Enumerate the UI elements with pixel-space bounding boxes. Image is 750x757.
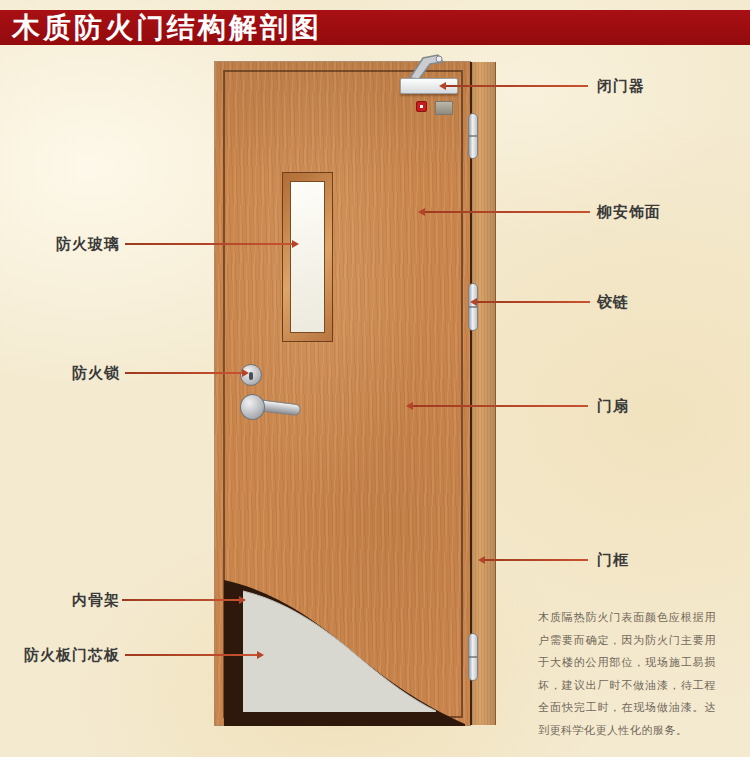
pointer-line-fire-glass — [125, 243, 293, 245]
pointer-line-lauan-veneer — [424, 211, 590, 213]
label-fire-board-core: 防火板门芯板 — [5, 647, 120, 662]
vision-panel-frame — [282, 172, 333, 342]
description-text: 木质隔热防火门表面颜色应根据用户需要而确定，因为防火门主要用于大楼的公用部位，现… — [538, 606, 716, 741]
label-hinge: 铰链 — [597, 294, 629, 309]
pointer-line-door-frame — [484, 559, 588, 561]
title-banner: 木质防火门结构解剖图 — [0, 10, 750, 45]
label-lauan-veneer: 柳安饰面 — [597, 204, 661, 219]
page-title: 木质防火门结构解剖图 — [0, 14, 322, 42]
hinge-top — [468, 113, 478, 159]
door-frame — [470, 62, 496, 725]
pointer-line-door-closer — [445, 85, 588, 87]
label-door-leaf: 门扇 — [597, 398, 629, 413]
fire-glass-panel — [290, 181, 325, 333]
page-background: 木质防火门结构解剖图 防火玻璃 防火锁 内骨架 防火板门芯板 闭门器 — [0, 0, 750, 757]
pointer-line-fire-board-core — [125, 654, 258, 656]
door-closer-arm-icon — [402, 53, 458, 80]
hinge-middle — [468, 283, 478, 331]
label-door-closer: 闭门器 — [597, 78, 645, 93]
handle-rose — [240, 394, 265, 420]
alarm-indicator-icon — [416, 101, 427, 112]
pointer-line-door-leaf — [412, 405, 588, 407]
label-fire-lock: 防火锁 — [5, 365, 120, 380]
pointer-line-hinge — [476, 301, 590, 303]
pointer-line-fire-lock — [125, 372, 243, 374]
cutaway-section — [215, 560, 470, 726]
label-inner-skeleton: 内骨架 — [5, 592, 120, 607]
label-fire-glass: 防火玻璃 — [5, 236, 120, 251]
closer-bracket — [435, 101, 453, 115]
label-door-frame: 门框 — [597, 552, 629, 567]
pointer-line-inner-skeleton — [122, 599, 240, 601]
